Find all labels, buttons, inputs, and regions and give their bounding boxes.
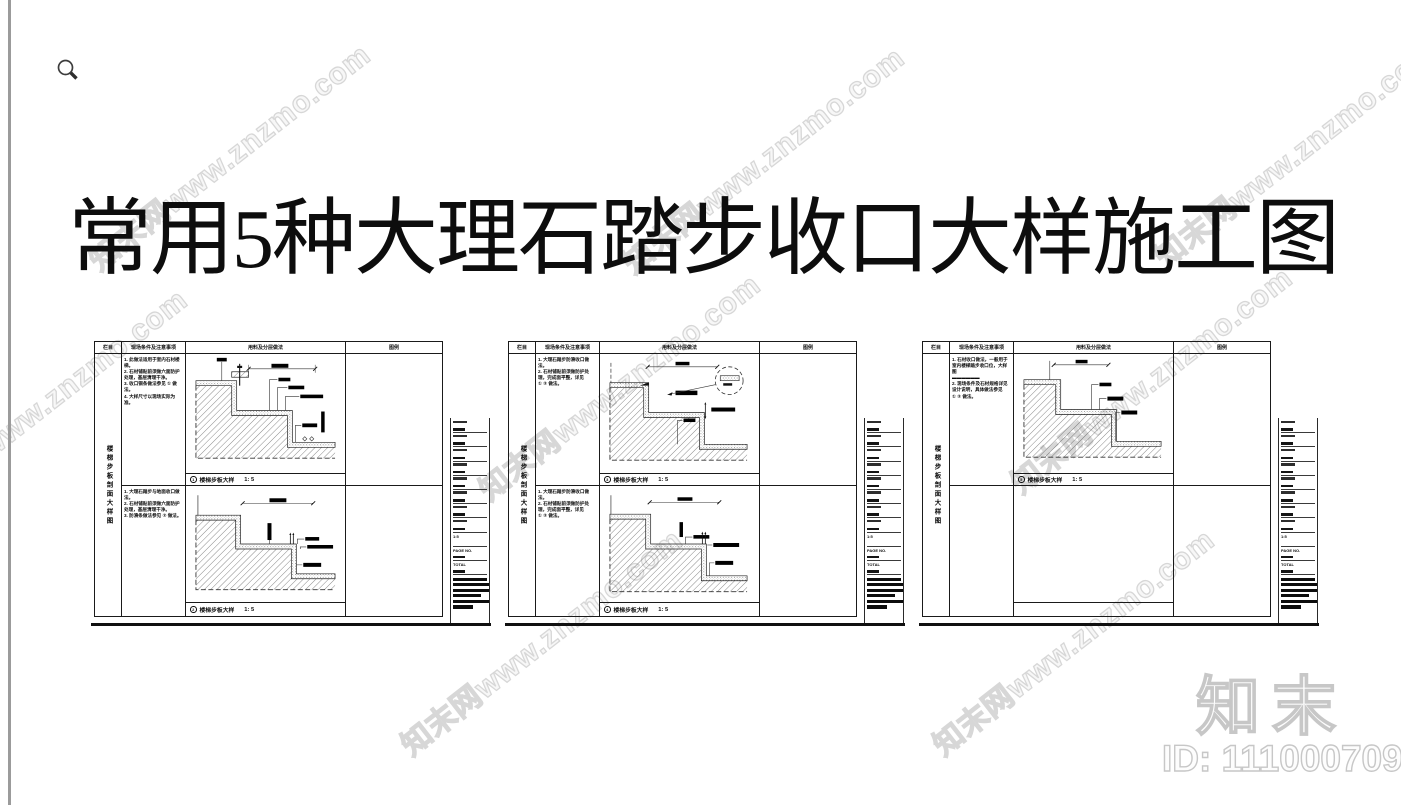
sheet1-header-col1: 栏目 <box>95 342 122 354</box>
sheet3-header-col1: 栏目 <box>923 342 950 354</box>
sheet1-caption-2-label: 楼梯步板大样 <box>200 605 235 614</box>
titleblock-page-no: PAGE NO. <box>867 548 886 553</box>
titleblock-row <box>453 447 487 461</box>
titleblock-page-no: PAGE NO. <box>1281 548 1300 553</box>
titleblock-row <box>1281 476 1315 490</box>
sheet3-side-label: 楼梯步板剖面大样图 <box>931 445 941 526</box>
sheet2-header-col4: 图例 <box>760 342 856 354</box>
sheet2-caption-1-number: 3 <box>604 476 611 483</box>
sheet1-header-col3: 用料及分层做法 <box>186 342 346 354</box>
sheet2-caption-1-scale: 1: 5 <box>658 477 668 483</box>
sheet3-caption-1: 5 楼梯步板大样 1: 5 <box>1014 473 1174 486</box>
sheet1-caption-1-label: 楼梯步板大样 <box>200 475 235 484</box>
sheet1-legend-cell-2 <box>346 486 442 616</box>
drawing-sheet-3: 栏目 现场条件及注意事项 用料及分层做法 图例 楼梯步板剖面大样图 1. 石材收… <box>914 336 1319 628</box>
sheet3-legend-cell-2 <box>1174 486 1270 616</box>
sheet1-table: 栏目 现场条件及注意事项 用料及分层做法 图例 楼梯步板剖面大样图 1. 此做法… <box>94 341 443 617</box>
titleblock-row <box>1281 433 1315 447</box>
sheet1-caption-1-scale: 1: 5 <box>244 477 254 483</box>
sheet1-header-col4: 图例 <box>346 342 442 354</box>
sheet1-side-label: 楼梯步板剖面大样图 <box>103 445 113 526</box>
titleblock-scale: 1:5 <box>1281 534 1287 539</box>
titleblock-row: 1:5 <box>1281 533 1315 547</box>
sheet3-header-col3: 用料及分层做法 <box>1014 342 1174 354</box>
sheet2-header-col2: 现场条件及注意事项 <box>536 342 600 354</box>
sheet3-detail-drawing-2-empty <box>1014 486 1174 602</box>
titleblock-row <box>867 518 901 532</box>
sheet2-caption-2-scale: 1: 5 <box>658 607 668 613</box>
sheet2-caption-2: 4 楼梯步板大样 1: 5 <box>600 602 760 616</box>
sheet1-titleblock: 1:5PAGE NO.TOTAL <box>450 418 490 623</box>
titleblock-row: 1:5 <box>453 533 487 547</box>
titleblock-row <box>453 419 487 433</box>
sheet2-caption-1-label: 楼梯步板大样 <box>614 475 649 484</box>
sheet2-notes-2: 1. 大理石踏步防滑收口做法。 2. 石材铺贴前须做防护处理，完成面平整，详见 … <box>536 486 600 616</box>
sheet1-caption-2-scale: 1: 5 <box>244 607 254 613</box>
sheet2-legend-cell-2 <box>760 486 856 616</box>
sheet3-titleblock: 1:5PAGE NO.TOTAL <box>1278 418 1318 623</box>
titleblock-row: TOTAL <box>1281 561 1315 575</box>
sheet2-header-col1: 栏目 <box>509 342 536 354</box>
sheet1-notes-1: 1. 此做法适用于室内石材楼梯。 2. 石材铺贴前须做六面防护处理，基层清理干净… <box>122 354 186 486</box>
titleblock-row: PAGE NO. <box>867 547 901 561</box>
drawing-sheet-2: 栏目 现场条件及注意事项 用料及分层做法 图例 楼梯步板剖面大样图 1. 大理石… <box>500 336 905 628</box>
sheet3-caption-2-empty <box>1014 602 1174 616</box>
titleblock-redacted-bars <box>453 578 487 609</box>
sheet2-legend-cell-1 <box>760 354 856 486</box>
sheet2-bottom-border <box>505 623 905 626</box>
sheet1-caption-1-number: 1 <box>190 476 197 483</box>
titleblock-row: PAGE NO. <box>453 547 487 561</box>
asset-id-text: ID: 1110007096 <box>1162 738 1401 780</box>
sheet1-legend-cell-1 <box>346 354 442 486</box>
titleblock-scale: 1:5 <box>867 534 873 539</box>
brand-logo-text: 知末 <box>1196 656 1348 748</box>
zoom-icon[interactable] <box>55 57 82 84</box>
sheet3-caption-1-number: 5 <box>1018 476 1025 483</box>
sheet3-header-col2: 现场条件及注意事项 <box>950 342 1014 354</box>
titleblock-row <box>867 447 901 461</box>
titleblock-row <box>867 433 901 447</box>
sheet1-caption-1: 1 楼梯步板大样 1: 5 <box>186 473 346 486</box>
drawing-sheet-1: 栏目 现场条件及注意事项 用料及分层做法 图例 楼梯步板剖面大样图 1. 此做法… <box>86 336 491 628</box>
sheet3-caption-1-scale: 1: 5 <box>1072 477 1082 483</box>
page-left-border <box>8 0 11 805</box>
sheet3-bottom-border <box>919 623 1319 626</box>
titleblock-row <box>453 476 487 490</box>
titleblock-total: TOTAL <box>1281 562 1294 567</box>
sheet2-detail-drawing-2 <box>600 486 760 602</box>
sheet3-category-cell: 楼梯步板剖面大样图 <box>923 354 950 616</box>
titleblock-row <box>867 490 901 504</box>
titleblock-row: PAGE NO. <box>1281 547 1315 561</box>
sheet1-caption-2: 2 楼梯步板大样 1: 5 <box>186 602 346 616</box>
sheet1-detail-drawing-2 <box>186 486 346 602</box>
titleblock-row: TOTAL <box>867 561 901 575</box>
titleblock-row <box>867 462 901 476</box>
titleblock-row <box>453 504 487 518</box>
titleblock-row <box>1281 518 1315 532</box>
titleblock-row <box>453 433 487 447</box>
titleblock-row <box>453 490 487 504</box>
titleblock-row <box>867 504 901 518</box>
sheet2-caption-2-label: 楼梯步板大样 <box>614 605 649 614</box>
titleblock-scale: 1:5 <box>453 534 459 539</box>
titleblock-row <box>1281 447 1315 461</box>
titleblock-total: TOTAL <box>867 562 880 567</box>
sheet2-titleblock: 1:5PAGE NO.TOTAL <box>864 418 904 623</box>
titleblock-total: TOTAL <box>453 562 466 567</box>
sheet3-table: 栏目 现场条件及注意事项 用料及分层做法 图例 楼梯步板剖面大样图 1. 石材收… <box>922 341 1271 617</box>
titleblock-row <box>1281 419 1315 433</box>
titleblock-row: TOTAL <box>453 561 487 575</box>
sheet3-detail-drawing-1 <box>1014 354 1174 473</box>
titleblock-row <box>1281 490 1315 504</box>
sheet2-notes-1: 1. 大理石踏步防滑收口做法。 2. 石材铺贴前须做防护处理，完成面平整，详见 … <box>536 354 600 486</box>
titleblock-redacted-bars <box>867 578 901 609</box>
sheet1-notes-2: 1. 大理石踏步与地面收口做法。 2. 石材铺贴前须做六面防护处理，基层清理干净… <box>122 486 186 616</box>
sheet3-legend-cell-1 <box>1174 354 1270 486</box>
sheet2-caption-1: 3 楼梯步板大样 1: 5 <box>600 473 760 486</box>
titleblock-row <box>867 419 901 433</box>
titleblock-row <box>1281 504 1315 518</box>
sheet1-detail-drawing-1 <box>186 354 346 473</box>
titleblock-row: 1:5 <box>867 533 901 547</box>
sheet2-caption-2-number: 4 <box>604 606 611 613</box>
sheet1-category-cell: 楼梯步板剖面大样图 <box>95 354 122 616</box>
sheet3-caption-1-label: 楼梯步板大样 <box>1028 475 1063 484</box>
sheet1-bottom-border <box>91 623 491 626</box>
sheet1-header-col2: 现场条件及注意事项 <box>122 342 186 354</box>
sheet2-header-col3: 用料及分层做法 <box>600 342 760 354</box>
sheet3-header-col4: 图例 <box>1174 342 1270 354</box>
sheet2-detail-drawing-1 <box>600 354 760 473</box>
titleblock-page-no: PAGE NO. <box>453 548 472 553</box>
sheet2-category-cell: 楼梯步板剖面大样图 <box>509 354 536 616</box>
titleblock-row <box>867 476 901 490</box>
titleblock-row <box>1281 462 1315 476</box>
titleblock-row <box>453 518 487 532</box>
titleblock-row <box>453 462 487 476</box>
sheet3-notes-1: 1. 石材收口做法，一般用于室内楼梯踏步收口位，大样图 ▬▬▬▬▬▬ 2. 现场… <box>950 354 1014 486</box>
sheet3-notes-2 <box>950 486 1014 616</box>
titleblock-redacted-bars <box>1281 578 1315 609</box>
sheet2-table: 栏目 现场条件及注意事项 用料及分层做法 图例 楼梯步板剖面大样图 1. 大理石… <box>508 341 857 617</box>
page-title: 常用5种大理石踏步收口大样施工图 <box>68 190 1338 291</box>
sheet2-side-label: 楼梯步板剖面大样图 <box>517 445 527 526</box>
sheet1-caption-2-number: 2 <box>190 606 197 613</box>
